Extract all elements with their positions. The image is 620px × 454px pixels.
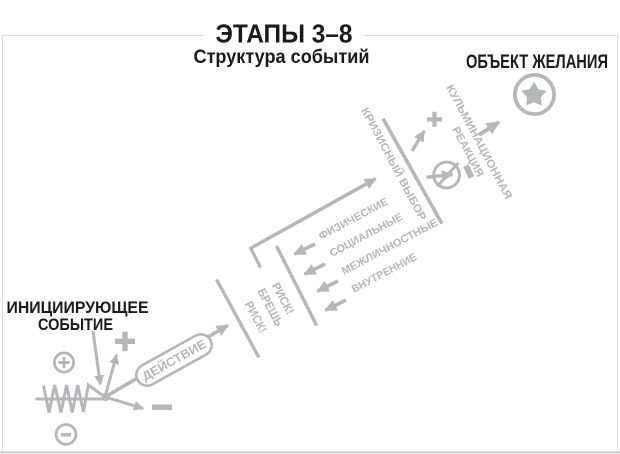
svg-text:Структура событий: Структура событий (194, 46, 370, 68)
svg-text:ОБЪЕКТ ЖЕЛАНИЯ: ОБЪЕКТ ЖЕЛАНИЯ (466, 51, 608, 73)
svg-text:ЭТАПЫ 3–8: ЭТАПЫ 3–8 (216, 19, 353, 49)
svg-text:СОБЫТИЕ: СОБЫТИЕ (38, 315, 113, 334)
